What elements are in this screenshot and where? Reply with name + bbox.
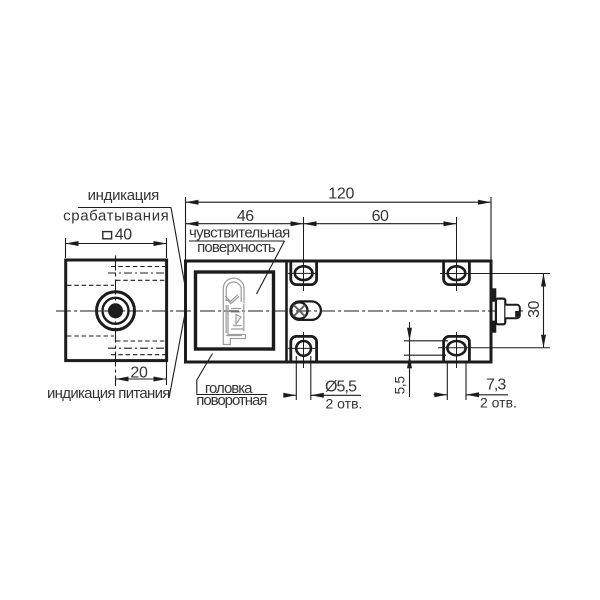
- svg-text:5,5: 5,5: [392, 376, 407, 394]
- svg-text:срабатывания: срабатывания: [63, 208, 169, 225]
- svg-text:2 отв.: 2 отв.: [480, 395, 517, 411]
- svg-text:7,3: 7,3: [486, 377, 506, 394]
- svg-text:индикация: индикация: [88, 187, 160, 204]
- svg-text:60: 60: [372, 208, 389, 225]
- svg-text:2 отв.: 2 отв.: [326, 395, 363, 411]
- svg-text:Ø5,5: Ø5,5: [325, 378, 357, 395]
- svg-text:46: 46: [237, 208, 254, 225]
- svg-text:40: 40: [115, 226, 132, 243]
- svg-text:поверхность: поверхность: [197, 239, 276, 256]
- svg-text:поворотная: поворотная: [196, 392, 267, 409]
- svg-text:120: 120: [328, 186, 354, 203]
- svg-text:20: 20: [130, 365, 148, 382]
- svg-text:30: 30: [526, 301, 543, 318]
- svg-text:индикация питания: индикация питания: [47, 385, 170, 402]
